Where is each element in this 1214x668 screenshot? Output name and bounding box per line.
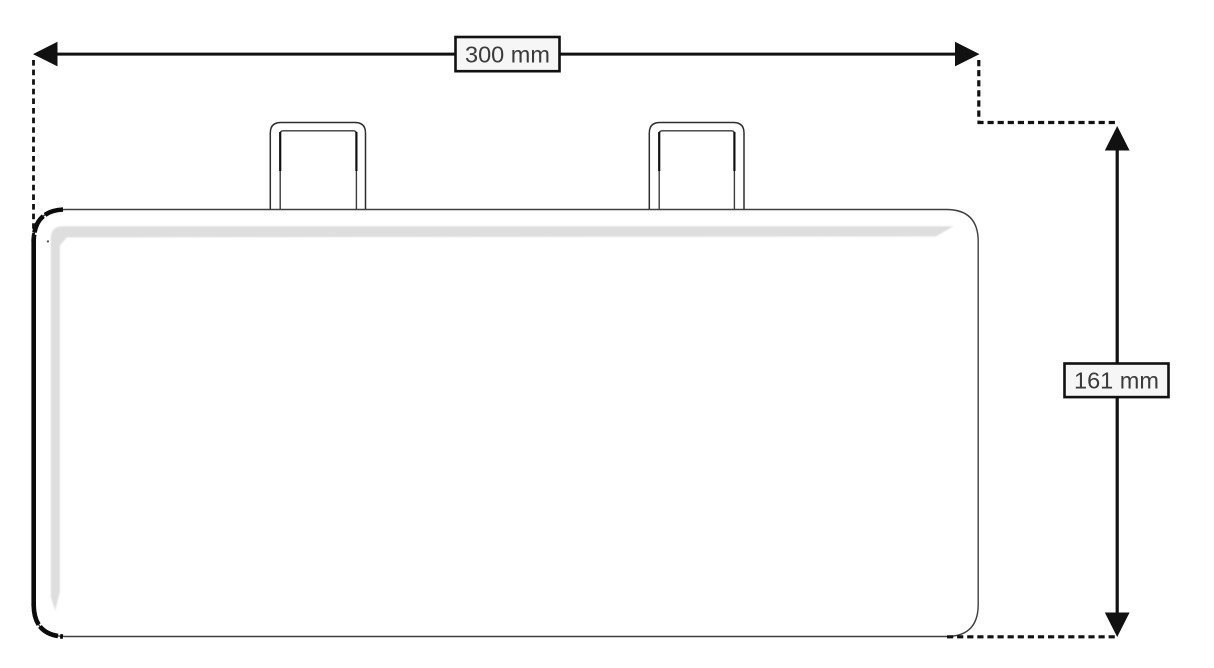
svg-text:161 mm: 161 mm [1074, 368, 1159, 394]
svg-text:300 mm: 300 mm [465, 41, 550, 67]
